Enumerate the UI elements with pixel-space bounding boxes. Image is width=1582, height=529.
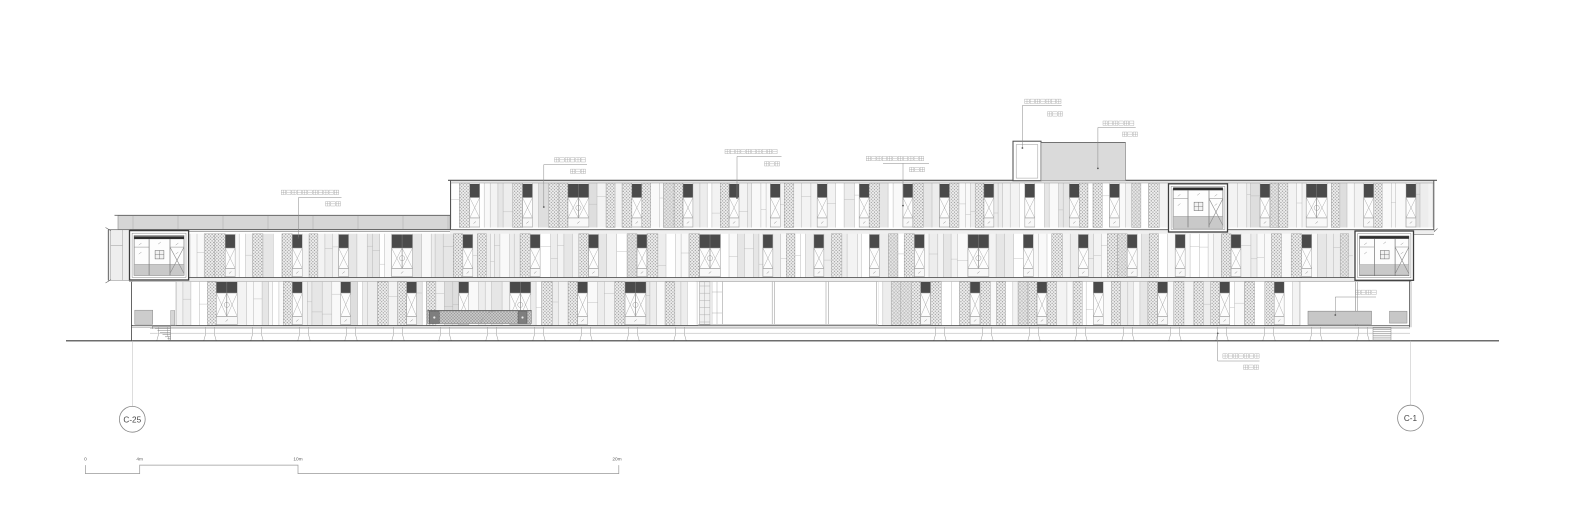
svg-text:10m: 10m [293, 457, 302, 463]
svg-text:0: 0 [84, 457, 87, 463]
svg-text:C-25: C-25 [123, 415, 141, 424]
svg-text:4m: 4m [136, 457, 143, 463]
svg-text:C-1: C-1 [1404, 414, 1418, 423]
svg-text:20m: 20m [612, 457, 621, 463]
